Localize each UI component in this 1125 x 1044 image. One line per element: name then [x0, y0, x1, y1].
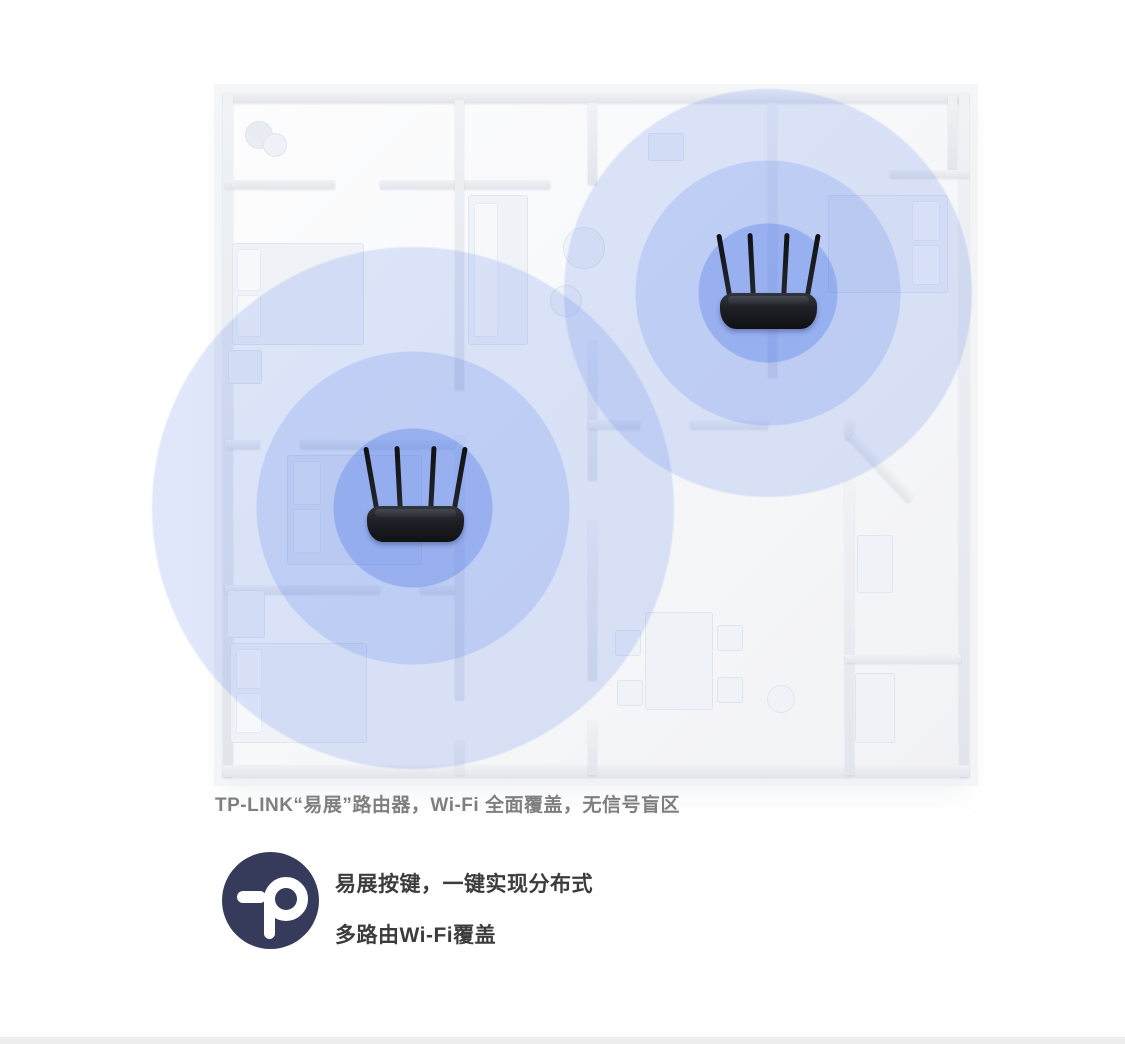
floorplan [155, 85, 985, 780]
tp-link-logo [222, 852, 319, 949]
sofa-cushion [474, 203, 498, 337]
feature-line-1: 易展按键，一键实现分布式 [335, 868, 815, 898]
chair [617, 680, 643, 706]
cabinet [227, 590, 265, 638]
tp-logo-t-dash [237, 891, 266, 903]
wall-top [223, 93, 969, 103]
bottom-divider-bar [0, 1037, 1125, 1044]
toilet [767, 685, 795, 713]
wall-interior [588, 340, 597, 480]
tp-logo-p-stem [264, 899, 275, 939]
router-body [720, 293, 817, 329]
kitchen-counter [855, 673, 895, 743]
nightstand [228, 350, 262, 384]
wall-interior [588, 720, 597, 775]
bedroom-router [720, 232, 817, 329]
chair [717, 625, 743, 651]
pillow [912, 245, 940, 285]
feature-line-2: 多路由Wi-Fi覆盖 [335, 919, 815, 949]
chair [717, 677, 743, 703]
wall-closet [890, 170, 969, 178]
wall-interior [588, 520, 597, 680]
wall-interior [225, 180, 335, 189]
wall-bathroom [845, 480, 854, 775]
pillow [293, 509, 321, 553]
plant [263, 133, 287, 157]
router-antenna [781, 233, 790, 301]
router-antenna [428, 446, 437, 514]
coverage-caption: TP-LINK“易展”路由器，Wi-Fi 全面覆盖，无信号盲区 [215, 790, 680, 817]
living-room-router [367, 445, 464, 542]
feature-text: 易展按键，一键实现分布式 多路由Wi-Fi覆盖 [335, 868, 815, 949]
stool [550, 285, 582, 317]
product-infographic: TP-LINK“易展”路由器，Wi-Fi 全面覆盖，无信号盲区 易展按键，一键实… [0, 0, 1125, 1044]
washer [857, 535, 893, 593]
wall-right [959, 93, 969, 777]
router-antenna [747, 233, 756, 301]
chair [615, 630, 641, 656]
pillow [237, 295, 261, 337]
wall-interior [225, 440, 260, 449]
router-body [367, 506, 464, 542]
wall-interior [690, 420, 768, 429]
wall-bathroom [845, 655, 961, 663]
dining-table [645, 612, 713, 710]
pillow [236, 649, 262, 689]
wall-interior [380, 180, 550, 189]
wall-interior [588, 103, 597, 185]
wall-interior [455, 100, 464, 390]
wall-interior [420, 585, 455, 594]
router-antenna [394, 446, 403, 514]
wall-interior [455, 740, 464, 775]
pillow [912, 201, 940, 241]
pillow [236, 693, 262, 733]
pillow [237, 249, 261, 291]
wall-interior [588, 420, 640, 429]
small-table [648, 133, 684, 161]
pillow [293, 461, 321, 505]
wall-closet [948, 96, 957, 171]
side-table [563, 227, 605, 269]
